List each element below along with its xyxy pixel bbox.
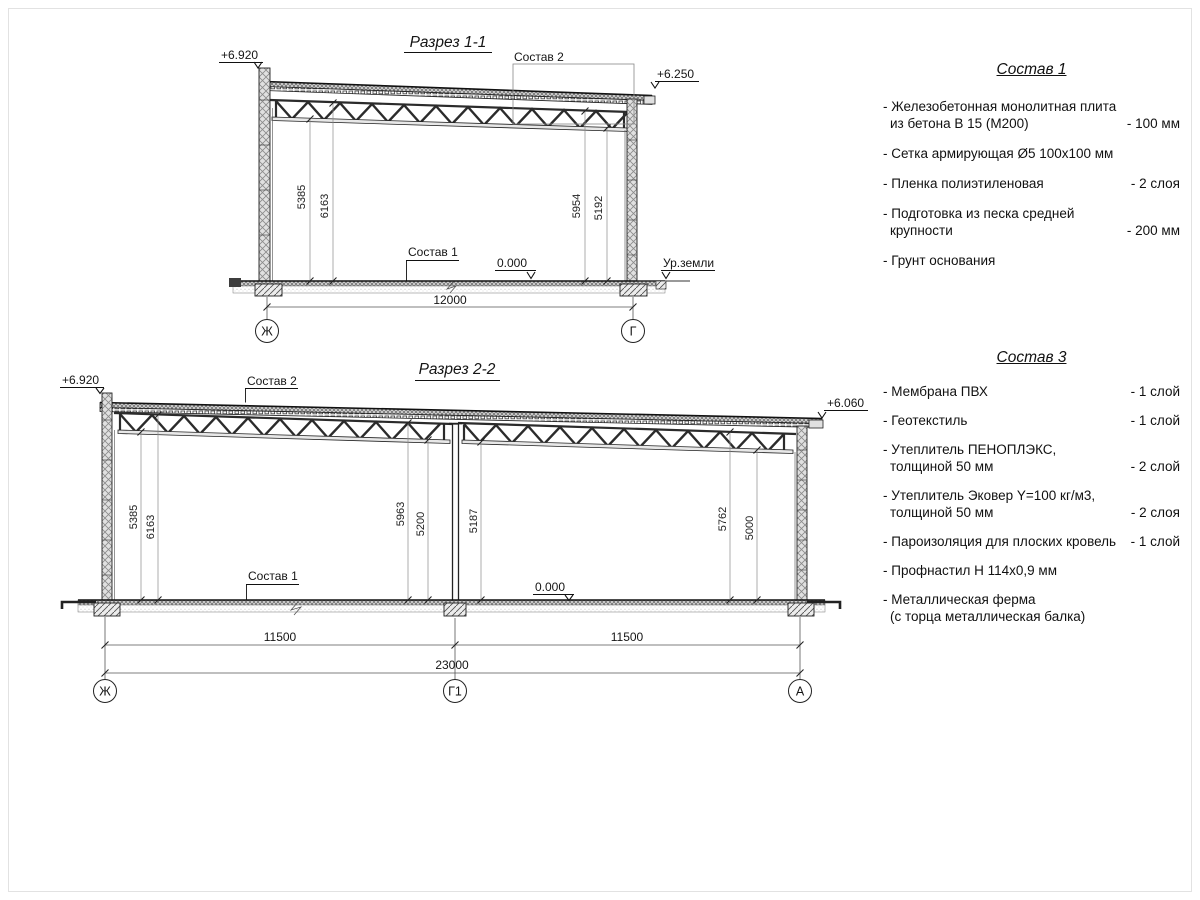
- material-item: - Пленка полиэтиленовая - 2 слоя: [883, 175, 1180, 192]
- dimension-text: 11500: [611, 630, 644, 644]
- callout-label: Состав 2: [247, 374, 297, 388]
- dimension-text: 6163: [319, 194, 331, 218]
- callout-label: Состав 2: [514, 50, 564, 64]
- material-name: - Мембрана ПВХ: [883, 383, 988, 400]
- material-value: - 2 слой: [1131, 458, 1180, 475]
- level-value: 0.000: [535, 580, 565, 594]
- left-wall-2-2: [102, 393, 115, 603]
- material-name-line2: толщиной 50 мм: [883, 458, 1056, 475]
- material-name-line2: (с торца металлическая балка): [883, 608, 1085, 625]
- callout-sostav2-1-1: Состав 2: [513, 50, 634, 124]
- material-value: - 100 мм: [1127, 115, 1180, 132]
- material-name-line2: крупности: [883, 222, 1074, 239]
- level-zero-1-1: 0.000: [495, 256, 536, 279]
- span-dimensions-2-2: 11500 11500 23000: [102, 617, 804, 679]
- material-name: - Подготовка из песка средней: [883, 205, 1074, 222]
- axis-bubbles-1-1: Ж Г: [256, 320, 645, 343]
- dimension-text: 23000: [435, 658, 469, 672]
- callout-label: Состав 1: [408, 245, 458, 259]
- drawing-sheet: Разрез 1-1: [0, 0, 1200, 900]
- axis-label: Г: [630, 325, 637, 339]
- axis-label: Г1: [448, 685, 462, 699]
- level-value: 0.000: [497, 256, 527, 270]
- material-item: - Металлическая ферма(с торца металличес…: [883, 591, 1180, 625]
- material-name: - Металлическая ферма: [883, 591, 1085, 608]
- section-2-2-title: Разрез 2-2: [419, 361, 496, 378]
- sostav3-title: Состав 3: [883, 348, 1180, 367]
- material-item: - Утеплитель Эковер Y=100 кг/м3,толщиной…: [883, 487, 1180, 521]
- section-2-2: Разрез 2-2: [60, 361, 868, 703]
- material-name-line2: из бетона В 15 (М200): [883, 115, 1116, 132]
- material-item: - Грунт основания: [883, 252, 1180, 269]
- dimension-text: 5192: [593, 196, 605, 220]
- callout-sostav2-2-2: Состав 2: [245, 374, 298, 403]
- elevation-right-2-2: +6.060: [818, 396, 868, 418]
- material-item: - Пароизоляция для плоских кровель - 1 с…: [883, 533, 1180, 550]
- material-name-line2: толщиной 50 мм: [883, 504, 1095, 521]
- ground-level-label-1-1: Ур.земли: [661, 256, 715, 279]
- dimension-text: 12000: [433, 293, 467, 307]
- roof-edge-cap: [644, 96, 655, 104]
- elevation-value: +6.920: [221, 48, 258, 62]
- material-value: - 1 слой: [1131, 383, 1180, 400]
- material-value: - 2 слоя: [1131, 175, 1180, 192]
- dimension-text: 11500: [264, 630, 297, 644]
- footing-left: [255, 284, 282, 296]
- elevation-value: +6.250: [657, 67, 694, 81]
- dimension-text: 5385: [296, 185, 308, 209]
- material-item: - Сетка армирующая Ø5 100х100 мм: [883, 145, 1180, 162]
- sostav1-panel: Состав 1 - Железобетонная монолитная пли…: [883, 60, 1180, 282]
- elevation-value: +6.060: [827, 396, 864, 410]
- dimension-text: 5200: [415, 512, 427, 536]
- material-name: - Геотекстиль: [883, 412, 967, 429]
- sostav1-title: Состав 1: [883, 60, 1180, 79]
- footing-left: [94, 603, 120, 616]
- dimension-text: 5187: [468, 509, 480, 533]
- footing-center: [444, 603, 466, 616]
- dimension-text: 5000: [744, 516, 756, 540]
- material-item: - Мембрана ПВХ - 1 слой: [883, 383, 1180, 400]
- elevation-left-2-2: +6.920: [60, 373, 104, 394]
- dimension-text: 6163: [145, 515, 157, 539]
- elevation-value: +6.920: [62, 373, 99, 387]
- span-dimension-1-1: 12000: [264, 293, 637, 320]
- material-name: - Грунт основания: [883, 252, 995, 269]
- material-name: - Профнастил Н 114х0,9 мм: [883, 562, 1057, 579]
- material-value: - 1 слой: [1131, 412, 1180, 429]
- dimension-text: 5954: [571, 194, 583, 218]
- ground-mark-left: [229, 278, 241, 287]
- footing-right: [788, 603, 814, 616]
- axis-label: А: [796, 685, 805, 699]
- material-item: - Железобетонная монолитная плитаиз бето…: [883, 98, 1180, 132]
- material-value: - 2 слоя: [1131, 504, 1180, 521]
- dimension-text: 5385: [128, 505, 140, 529]
- material-value: - 200 мм: [1127, 222, 1180, 239]
- elevation-right-1-1: +6.250: [651, 67, 699, 88]
- right-wall-2-2: [795, 426, 807, 603]
- callout-sostav1-1-1: Состав 1: [406, 245, 459, 281]
- axis-label: Ж: [261, 325, 273, 339]
- material-item: - Утеплитель ПЕНОПЛЭКС,толщиной 50 мм - …: [883, 441, 1180, 475]
- floor-2-2: [62, 600, 840, 616]
- truss-1-1: [270, 100, 630, 132]
- center-column-2-2: [449, 424, 462, 604]
- dimension-text: 5963: [395, 502, 407, 526]
- callout-sostav1-2-2: Состав 1: [246, 569, 299, 600]
- section-1-1: Разрез 1-1: [219, 34, 715, 343]
- roof-edge-cap: [809, 420, 823, 428]
- footing-right: [620, 284, 647, 296]
- dimension-text: 5762: [717, 507, 729, 531]
- ground-mark-right: [656, 281, 666, 289]
- material-item: - Профнастил Н 114х0,9 мм: [883, 562, 1180, 579]
- material-item: - Подготовка из песка среднейкрупности -…: [883, 205, 1180, 239]
- material-value: - 1 слой: [1131, 533, 1180, 550]
- material-item: - Геотекстиль - 1 слой: [883, 412, 1180, 429]
- ground-label: Ур.земли: [663, 256, 714, 270]
- material-name: - Железобетонная монолитная плита: [883, 98, 1116, 115]
- truss-right-2-2: [458, 423, 796, 454]
- material-name: - Пароизоляция для плоских кровель: [883, 533, 1116, 550]
- sostav3-panel: Состав 3 - Мембрана ПВХ - 1 слой - Геоте…: [883, 348, 1180, 637]
- material-name: - Утеплитель ПЕНОПЛЭКС,: [883, 441, 1056, 458]
- callout-label: Состав 1: [248, 569, 298, 583]
- level-zero-2-2: 0.000: [533, 580, 574, 601]
- material-name: - Сетка армирующая Ø5 100х100 мм: [883, 145, 1113, 162]
- material-name: - Пленка полиэтиленовая: [883, 175, 1044, 192]
- axis-bubbles-2-2: Ж Г1 А: [94, 680, 812, 703]
- material-name: - Утеплитель Эковер Y=100 кг/м3,: [883, 487, 1095, 504]
- axis-label: Ж: [99, 685, 111, 699]
- section-1-1-title: Разрез 1-1: [410, 34, 487, 51]
- elevation-left-1-1: +6.920: [219, 48, 263, 68]
- right-wall-1-1: [625, 99, 637, 284]
